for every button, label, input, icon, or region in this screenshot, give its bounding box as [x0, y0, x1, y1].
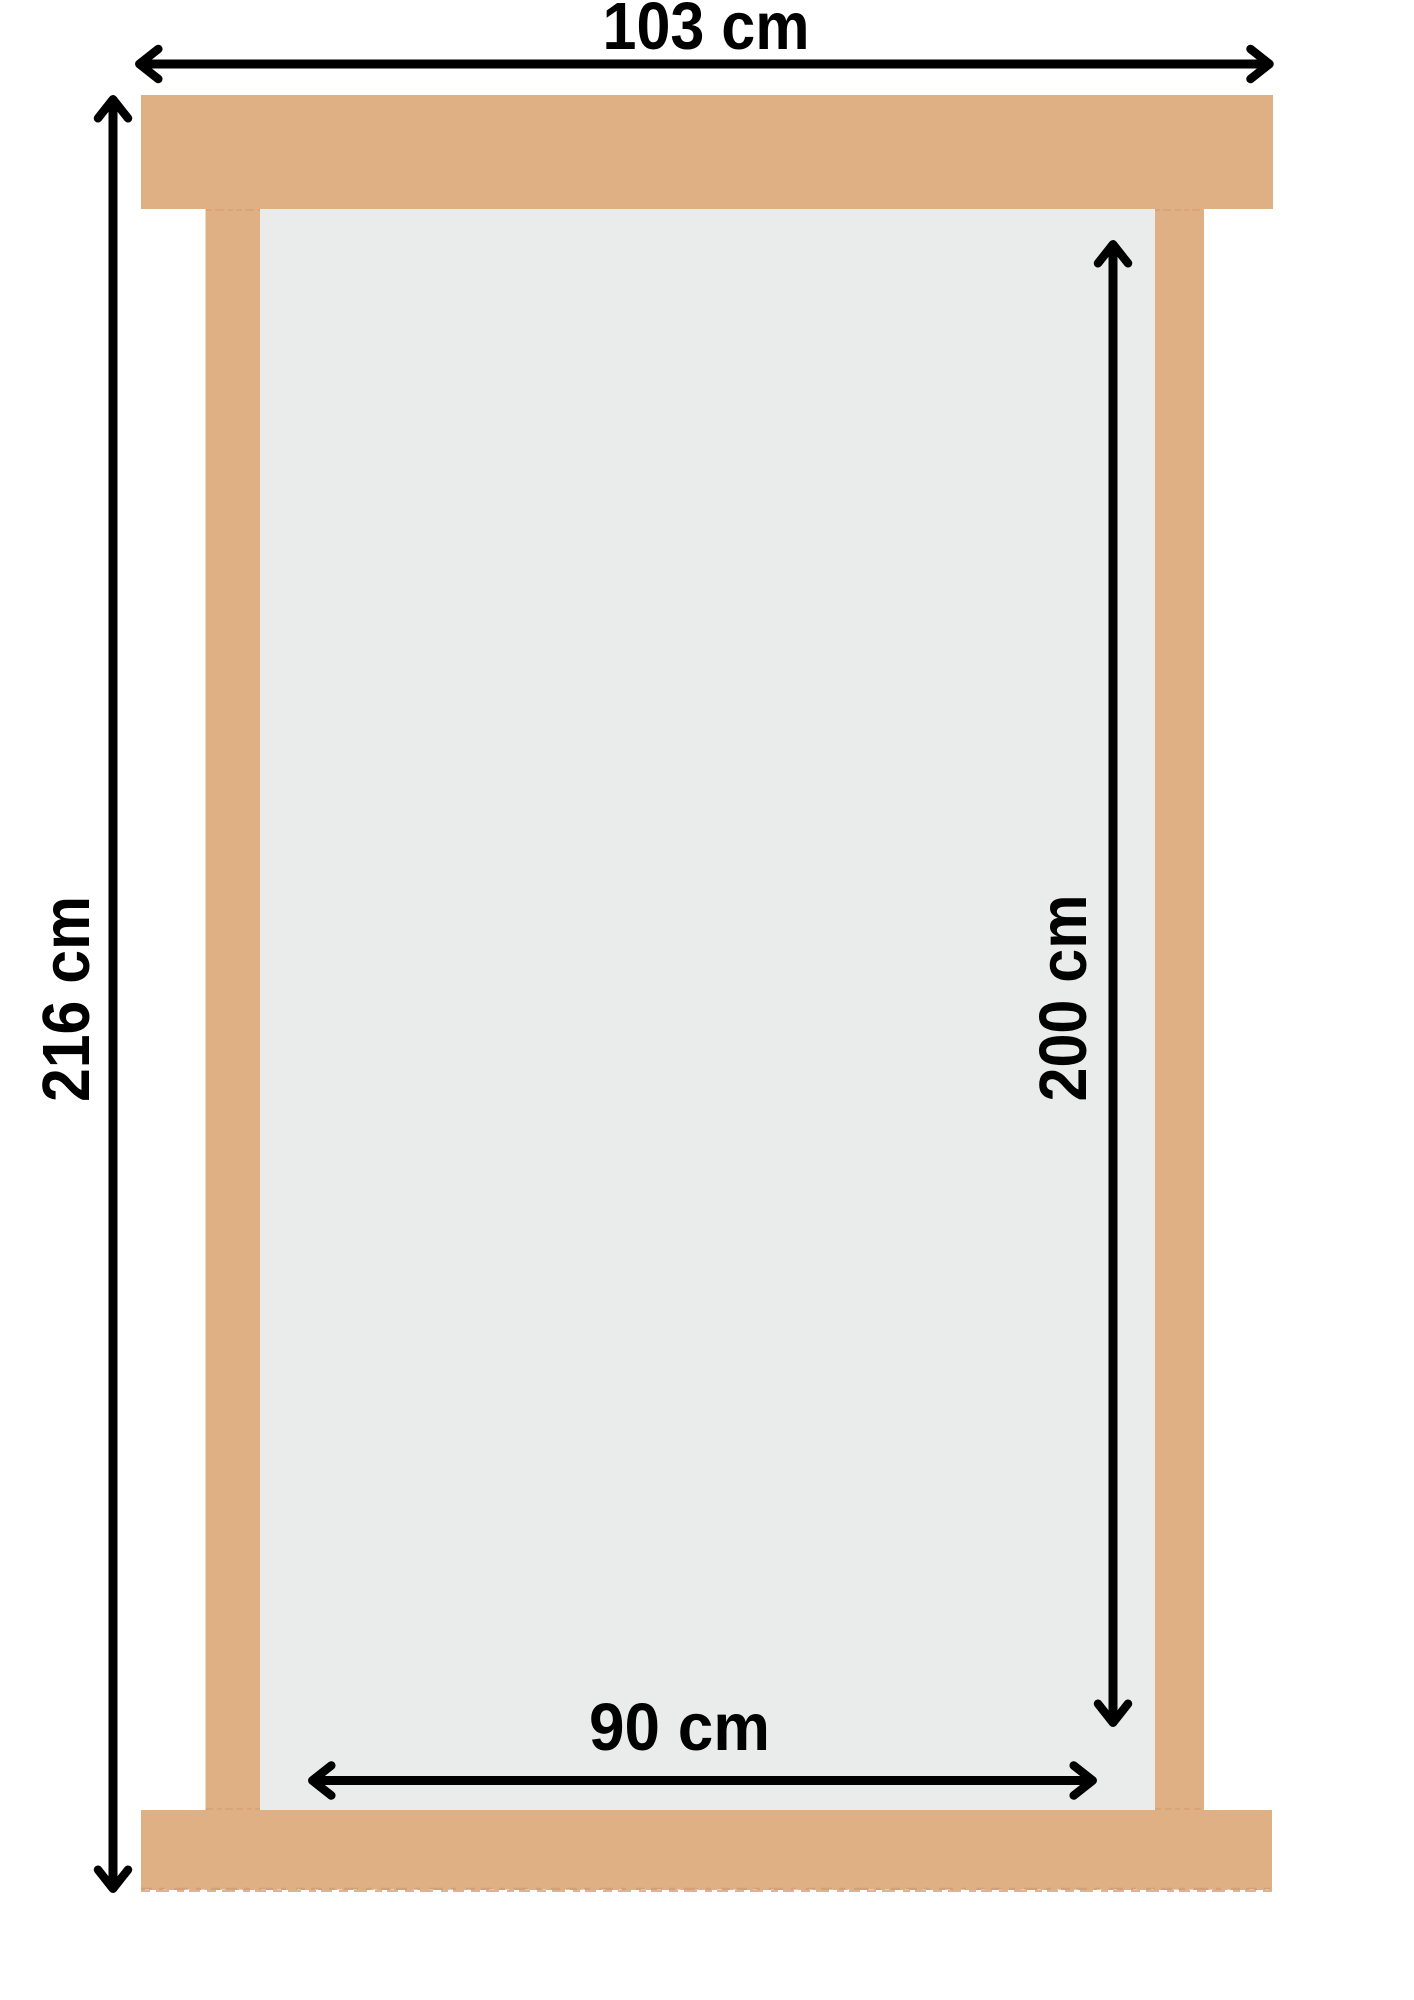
- svg-text:90 cm: 90 cm: [589, 1690, 770, 1765]
- svg-text:103 cm: 103 cm: [603, 0, 810, 64]
- svg-text:200 cm: 200 cm: [1026, 895, 1101, 1102]
- svg-text:216 cm: 216 cm: [29, 896, 104, 1102]
